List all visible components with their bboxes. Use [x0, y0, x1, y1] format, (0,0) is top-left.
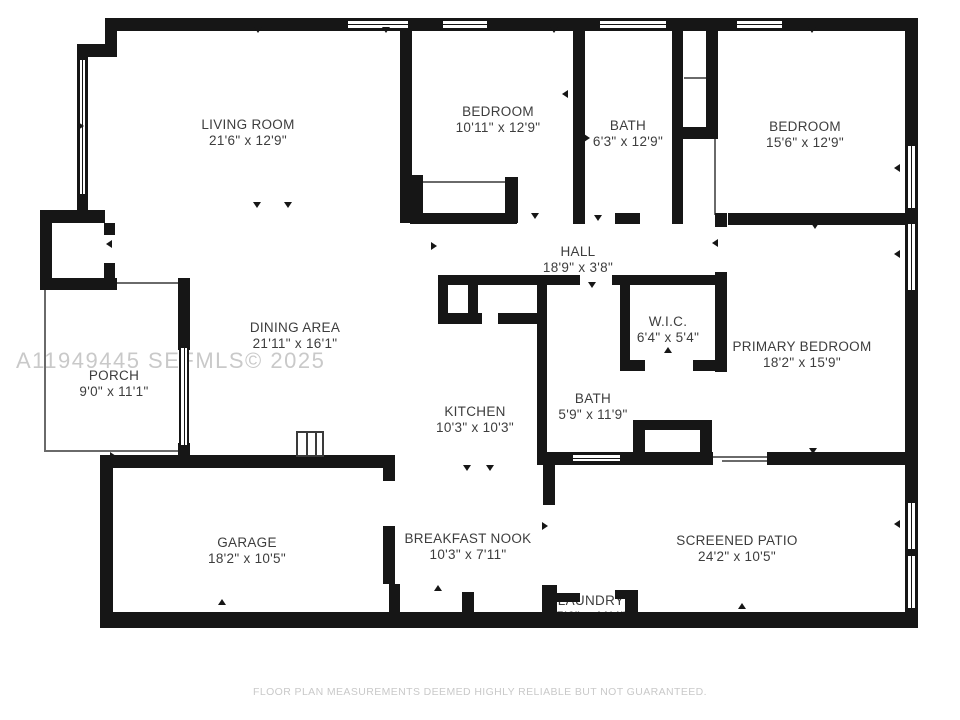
wall-segment — [543, 460, 555, 505]
disclaimer-text: FLOOR PLAN MEASUREMENTS DEEMED HIGHLY RE… — [0, 686, 960, 698]
room-dimensions: 6'4" x 5'4" — [637, 330, 699, 346]
wall-segment — [438, 275, 580, 285]
window — [906, 556, 917, 608]
room-dimensions: 10'3" x 7'11" — [405, 547, 532, 563]
room-dimensions: 15'6" x 12'9" — [766, 135, 844, 151]
room-dimensions: 21'6" x 12'9" — [201, 133, 294, 149]
wall-segment — [537, 275, 547, 463]
door-tick — [434, 585, 442, 591]
wall-segment — [672, 28, 683, 224]
room-name: BATH — [593, 118, 663, 134]
wall-segment — [625, 590, 638, 628]
room-name: PRIMARY BEDROOM — [732, 339, 871, 355]
window — [348, 19, 408, 30]
wall-segment — [728, 213, 917, 225]
door-tick — [562, 90, 568, 98]
door-tick — [894, 250, 900, 258]
window — [443, 19, 487, 30]
wall-segment — [178, 278, 190, 350]
door-tick — [811, 223, 819, 229]
room-name: PORCH — [79, 368, 148, 384]
door-tick — [486, 465, 494, 471]
room-dimensions: 9'0" x 11'1" — [79, 384, 148, 400]
door-tick — [106, 240, 112, 248]
wall-segment — [410, 213, 517, 224]
wall-segment — [100, 612, 918, 628]
wall-segment — [389, 584, 400, 624]
room-name: DINING AREA — [250, 320, 340, 336]
window — [906, 503, 917, 549]
wall-segment — [706, 28, 718, 133]
room-name: BEDROOM — [766, 119, 844, 135]
thin-line — [44, 450, 190, 452]
wall-segment — [438, 313, 482, 324]
wall-segment — [383, 526, 395, 584]
door-tick — [809, 448, 817, 454]
wall-segment — [715, 272, 727, 372]
door-tick — [531, 213, 539, 219]
room-dimensions: 18'2" x 10'5" — [208, 551, 286, 567]
room-label-wic: W.I.C.6'4" x 5'4" — [637, 314, 699, 346]
room-dimensions: 5'9" x 11'9" — [558, 407, 627, 423]
wall-segment — [620, 275, 630, 370]
room-name: W.I.C. — [637, 314, 699, 330]
door-tick — [254, 27, 262, 33]
door-tick — [894, 164, 900, 172]
door-tick — [664, 347, 672, 353]
door-tick — [382, 27, 390, 33]
room-label-primary-bedroom: PRIMARY BEDROOM18'2" x 15'9" — [732, 339, 871, 371]
window — [600, 19, 666, 30]
door-tick — [431, 242, 437, 250]
door-tick — [808, 27, 816, 33]
room-label-bedroom-3: BEDROOM15'6" x 12'9" — [766, 119, 844, 151]
room-name: KITCHEN — [436, 404, 514, 420]
room-name: BREAKFAST NOOK — [405, 531, 532, 547]
room-dimensions: 10'3" x 10'3" — [436, 420, 514, 436]
wall-segment — [537, 452, 713, 465]
room-dimensions: 21'11" x 16'1" — [250, 336, 340, 352]
room-dimensions: 6'3" x 12'9" — [593, 134, 663, 150]
room-name: BATH — [558, 391, 627, 407]
wall-segment — [620, 360, 645, 371]
room-dimensions: 18'2" x 15'9" — [732, 355, 871, 371]
door-tick — [588, 282, 596, 288]
wall-segment — [104, 223, 115, 235]
thin-line — [44, 290, 46, 452]
window — [573, 453, 620, 463]
wall-segment — [767, 452, 917, 465]
room-label-breakfast-nook: BREAKFAST NOOK10'3" x 7'11" — [405, 531, 532, 563]
door-tick — [894, 520, 900, 528]
thin-line — [713, 456, 767, 458]
door-tick — [243, 460, 251, 466]
wall-segment — [672, 127, 718, 139]
room-label-porch: PORCH9'0" x 11'1" — [79, 368, 148, 400]
door-tick — [584, 134, 590, 142]
wall-segment — [693, 360, 723, 371]
room-label-living-room: LIVING ROOM21'6" x 12'9" — [201, 117, 294, 149]
room-name: HALL — [543, 244, 613, 260]
window — [737, 19, 782, 30]
room-dimensions: 18'9" x 3'8" — [543, 260, 613, 276]
window — [179, 348, 189, 445]
door-tick — [550, 27, 558, 33]
room-label-hall: HALL18'9" x 3'8" — [543, 244, 613, 276]
wall-segment — [557, 593, 580, 602]
thin-line — [714, 133, 716, 215]
room-name: SCREENED PATIO — [676, 533, 797, 549]
window — [906, 224, 917, 290]
thin-line — [684, 77, 706, 79]
door-tick — [253, 202, 261, 208]
thin-line — [117, 282, 178, 284]
wall-segment — [615, 213, 640, 224]
water-heater-symbol — [296, 431, 324, 457]
room-label-bedroom-2: BEDROOM10'11" x 12'9" — [456, 104, 541, 136]
room-name: GARAGE — [208, 535, 286, 551]
wall-segment — [715, 213, 727, 227]
room-label-dining-area: DINING AREA21'11" x 16'1" — [250, 320, 340, 352]
room-label-bath-1: BATH6'3" x 12'9" — [593, 118, 663, 150]
door-tick — [284, 202, 292, 208]
wall-segment — [542, 585, 557, 628]
room-label-kitchen: KITCHEN10'3" x 10'3" — [436, 404, 514, 436]
window — [906, 146, 917, 208]
room-label-screened-patio: SCREENED PATIO24'2" x 10'5" — [676, 533, 797, 565]
wall-segment — [573, 28, 585, 224]
door-tick — [463, 465, 471, 471]
door-tick — [218, 599, 226, 605]
wall-segment — [105, 18, 917, 31]
room-label-bath-2: BATH5'9" x 11'9" — [558, 391, 627, 423]
wall-segment — [383, 455, 395, 481]
room-name: BEDROOM — [456, 104, 541, 120]
room-label-garage: GARAGE18'2" x 10'5" — [208, 535, 286, 567]
door-tick — [110, 452, 116, 460]
thin-line — [423, 181, 507, 183]
door-tick — [78, 122, 84, 130]
room-dimensions: 10'11" x 12'9" — [456, 120, 541, 136]
floor-plan: A11949445 SEFMLS© 2025 FLOOR PLAN MEASUR… — [0, 0, 960, 720]
door-tick — [542, 522, 548, 530]
room-dimensions: 24'2" x 10'5" — [676, 549, 797, 565]
wall-segment — [104, 263, 115, 290]
door-tick — [594, 215, 602, 221]
door-tick — [712, 239, 718, 247]
door-tick — [738, 603, 746, 609]
room-name: LIVING ROOM — [201, 117, 294, 133]
wall-segment — [100, 455, 113, 625]
wall-segment — [462, 592, 474, 626]
thin-line — [722, 460, 767, 462]
